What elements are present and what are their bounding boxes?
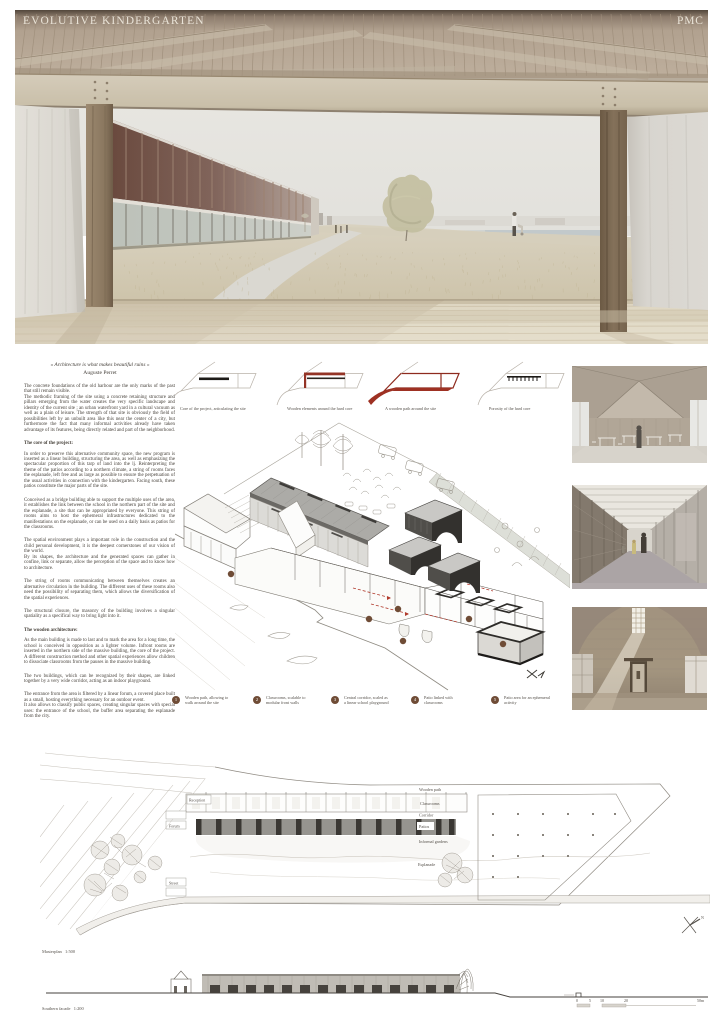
svg-text:Classrooms: Classrooms <box>420 801 440 806</box>
svg-text:5: 5 <box>589 998 591 1003</box>
svg-text:Street: Street <box>169 881 179 886</box>
svg-text:50m: 50m <box>697 998 705 1003</box>
svg-text:0: 0 <box>576 998 578 1003</box>
svg-text:10: 10 <box>600 998 604 1003</box>
svg-text:20: 20 <box>624 998 628 1003</box>
svg-text:Corridor: Corridor <box>419 813 434 818</box>
svg-text:N: N <box>701 915 704 920</box>
svg-text:Reception: Reception <box>189 798 205 803</box>
svg-text:Forum: Forum <box>169 824 181 829</box>
svg-text:Patios: Patios <box>419 824 430 829</box>
svg-text:Esplanade: Esplanade <box>418 862 435 867</box>
svg-text:Wooden path: Wooden path <box>419 787 442 792</box>
svg-text:Informal gardens: Informal gardens <box>419 839 448 844</box>
